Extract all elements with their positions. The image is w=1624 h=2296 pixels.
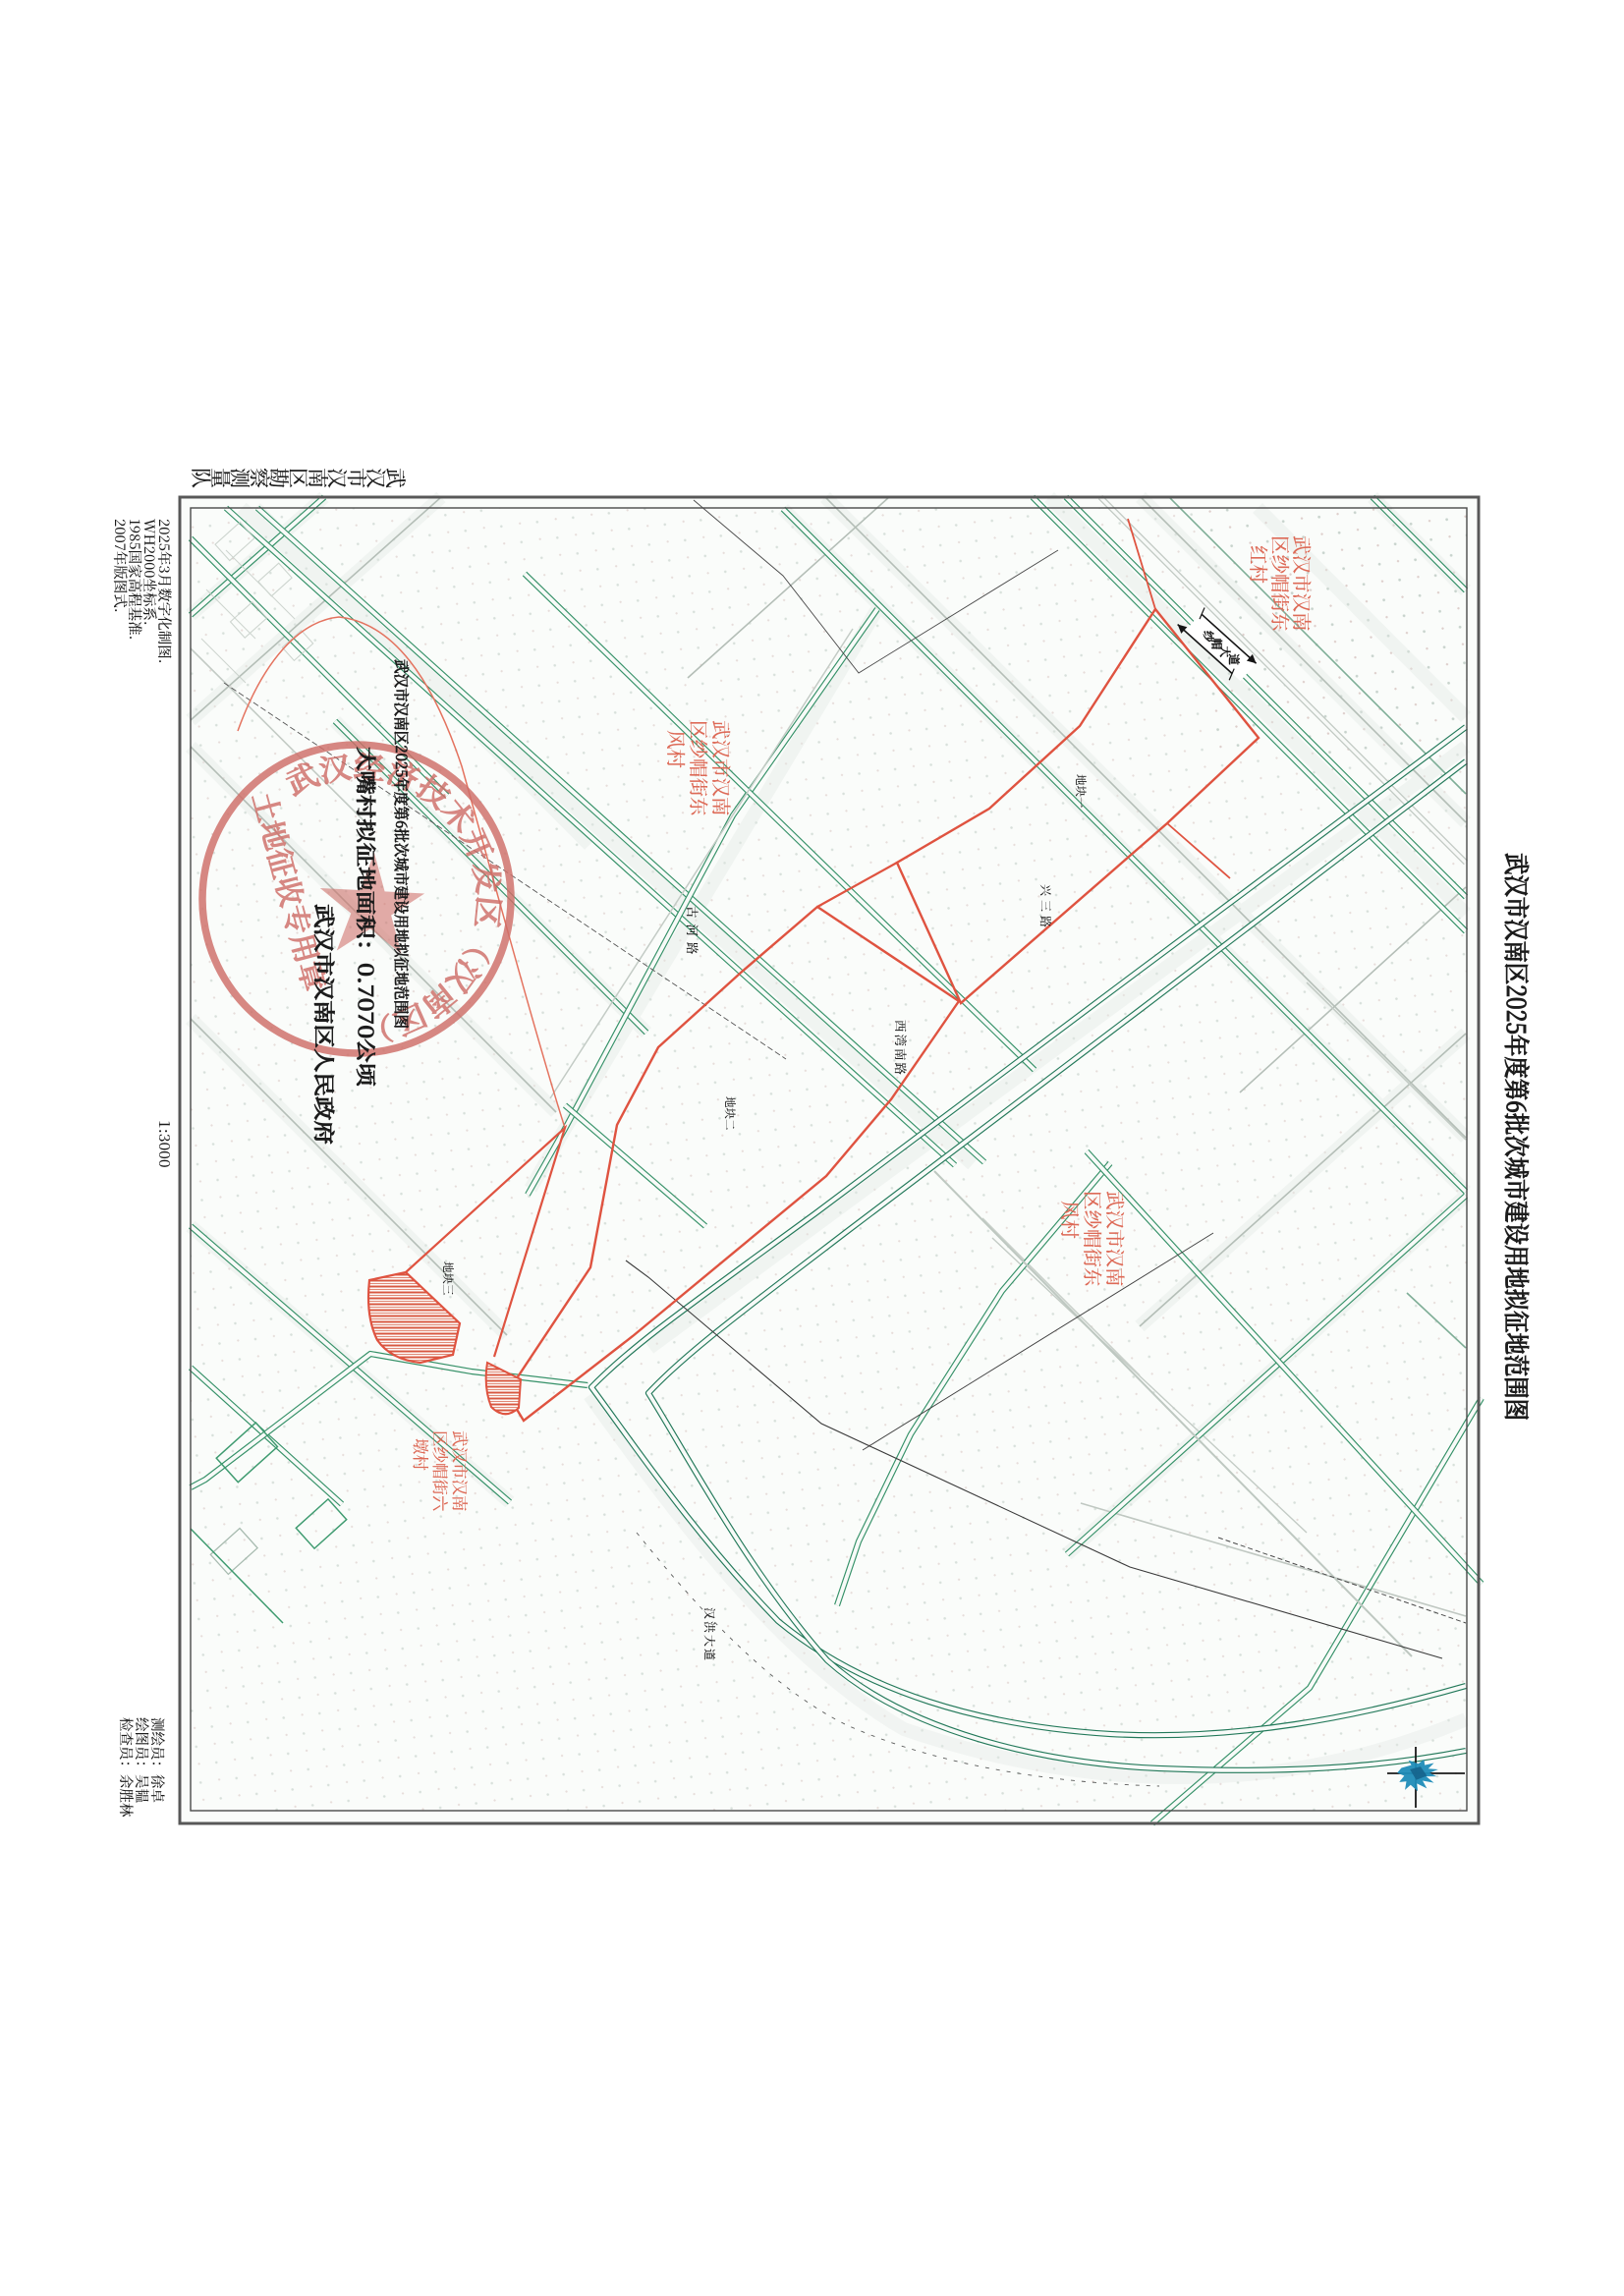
svg-text:古河路: 古河路 (684, 906, 701, 961)
svg-text:检查员：余胜林: 检查员：余胜林 (116, 1717, 137, 1818)
svg-text:武汉市汉南区2025年度第6批次城市建设用地拟征地范围图: 武汉市汉南区2025年度第6批次城市建设用地拟征地范围图 (1499, 853, 1536, 1421)
svg-text:兴三路: 兴三路 (1037, 884, 1054, 931)
svg-text:大嘴村拟征地面积：0.7070公顷: 大嘴村拟征地面积：0.7070公顷 (353, 747, 382, 1088)
svg-text:武汉市汉南区2025年度第6批次城市建设用地拟征地范围图: 武汉市汉南区2025年度第6批次城市建设用地拟征地范围图 (391, 659, 413, 1029)
svg-text:地块二: 地块二 (722, 1096, 738, 1131)
svg-text:地块三: 地块三 (440, 1261, 456, 1296)
svg-text:红村: 红村 (1246, 545, 1273, 584)
svg-text:道: 道 (1226, 653, 1242, 665)
svg-text:地块一: 地块一 (1073, 774, 1089, 809)
svg-text:1:3000: 1:3000 (154, 1120, 176, 1168)
svg-text:武: 武 (381, 468, 411, 488)
svg-text:西湾南路: 西湾南路 (892, 1020, 910, 1077)
svg-text:风村: 风村 (663, 730, 691, 768)
svg-text:风村: 风村 (1057, 1201, 1085, 1239)
svg-text:墩村: 墩村 (410, 1438, 433, 1472)
svg-text:2007年版图式.: 2007年版图式. (110, 519, 131, 613)
svg-text:汉洪大道: 汉洪大道 (701, 1607, 718, 1662)
svg-text:武汉市汉南区人民政府: 武汉市汉南区人民政府 (309, 904, 340, 1146)
